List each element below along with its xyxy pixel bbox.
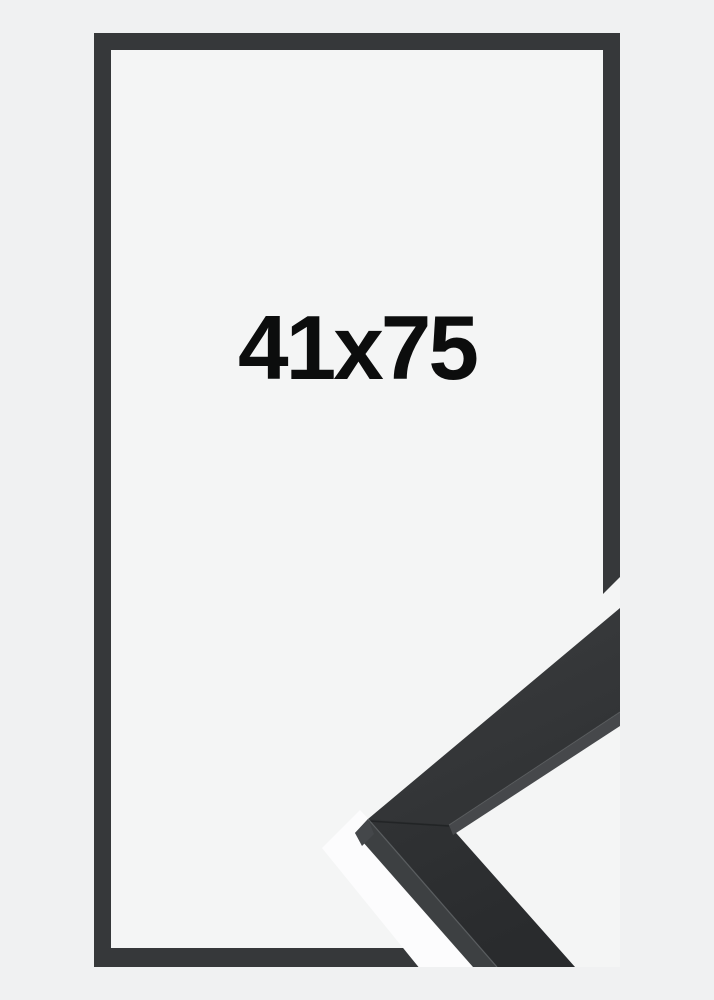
product-image-page: { "product": { "size_label": "41x75", "d… xyxy=(0,0,714,1000)
frame-mockup-graphic xyxy=(0,0,714,1000)
frame-product-image: 41x75 xyxy=(0,0,714,1000)
size-label: 41x75 xyxy=(94,303,620,394)
